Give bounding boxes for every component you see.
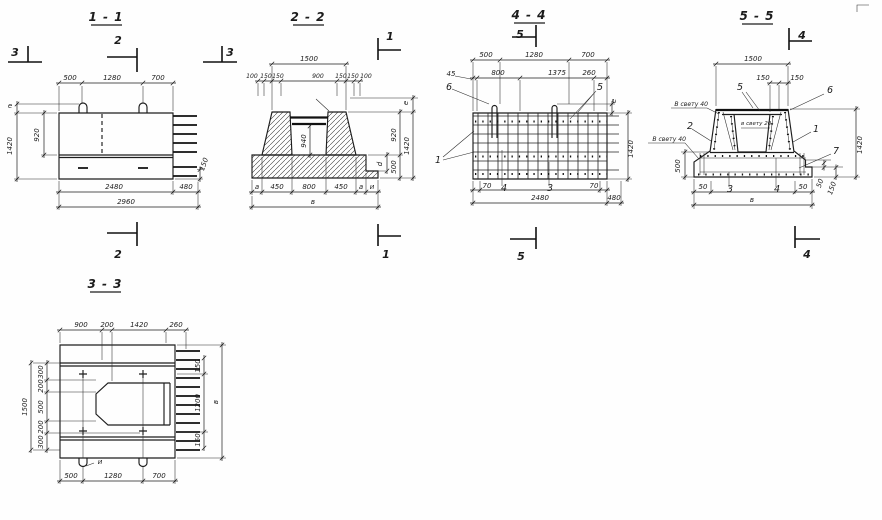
- dim-letter-a: а: [359, 183, 363, 191]
- dim: 500: [37, 400, 45, 414]
- dim: 200: [37, 420, 45, 434]
- cut-marker-5-top: 5: [516, 28, 524, 41]
- rebar-pos-3: 3: [547, 183, 553, 194]
- cut-marker-3-right: 3: [226, 46, 234, 59]
- dim: 480: [607, 194, 621, 202]
- dim-letter-u: и: [370, 183, 375, 191]
- section-2-2: 2 - 2 1 1 1500 100 150 150 900 150 150 1…: [246, 10, 418, 261]
- dim: 50: [699, 183, 708, 191]
- section-5-5-title: 5 - 5: [739, 9, 774, 23]
- dim: 1500: [744, 55, 762, 63]
- section-2-2-title: 2 - 2: [290, 10, 325, 24]
- lifting-loops: [79, 458, 147, 467]
- rebar-pos-4: 4: [501, 183, 507, 194]
- rebar-pos-6: 6: [827, 85, 833, 96]
- dim: 70: [590, 182, 599, 190]
- foundation-block-drawing: 1 - 1 3 3 2 2 500 1280 700 е 1420 920 15…: [0, 0, 882, 520]
- dim: 150: [194, 433, 202, 447]
- dim: 1280: [104, 472, 122, 480]
- dim: 50: [815, 177, 826, 189]
- base-slab-outline: [694, 151, 812, 177]
- dim: 800: [302, 183, 316, 191]
- dim: 150: [194, 359, 202, 373]
- dim: 2480: [531, 194, 549, 202]
- dim: 920: [33, 128, 41, 142]
- dim: 200: [100, 321, 114, 329]
- cut-marker-2-top: 2: [114, 34, 122, 47]
- dim: 920: [390, 128, 398, 142]
- cut-marker-5-bottom: 5: [517, 250, 525, 263]
- dim-letter-v: в: [212, 400, 220, 404]
- slot-opening: [96, 383, 170, 425]
- dim: 1500: [300, 55, 318, 63]
- section-1-1: 1 - 1 3 3 2 2 500 1280 700 е 1420 920 15…: [6, 10, 237, 261]
- dim: 150: [272, 73, 284, 80]
- rebar-pos-4: 4: [774, 184, 780, 195]
- cut-marker-4-bottom: 4: [802, 248, 811, 261]
- dim-letter-u: и: [98, 458, 103, 466]
- cut-marker-1-top: 1: [386, 30, 394, 43]
- dim: 1280: [103, 74, 121, 82]
- dim: 260: [169, 321, 183, 329]
- rebar-pos-6: 6: [446, 82, 452, 93]
- dim: 1200: [194, 394, 202, 412]
- dim: 1420: [6, 137, 14, 155]
- dim: 1420: [627, 140, 635, 158]
- dim: 2480: [105, 183, 123, 191]
- dim: 200: [37, 379, 45, 393]
- rebar-pos-1: 1: [435, 155, 441, 166]
- section-3-3: 3 - 3 900 200 1420 260 300 200 500 200 3…: [21, 277, 226, 484]
- dim: 1420: [403, 137, 411, 155]
- section-4-4: 4 - 4 5 5 500 1280 700 45 800 1375 260 е…: [435, 8, 635, 263]
- dim: 500: [674, 159, 682, 173]
- dim: 260: [582, 69, 596, 77]
- dim: 1420: [856, 136, 864, 154]
- dim-letter-a: а: [255, 183, 259, 191]
- rebar-pos-1: 1: [813, 124, 819, 135]
- dim: 100: [360, 73, 372, 80]
- dim: 480: [179, 183, 193, 191]
- dim: 150: [826, 180, 838, 196]
- cut-marker-3-left: 3: [11, 46, 19, 59]
- dim: 900: [74, 321, 88, 329]
- dim: 500: [479, 51, 493, 59]
- dim-letter-v: в: [311, 198, 315, 206]
- base-slab-section: [252, 155, 378, 178]
- cut-marker-2-bottom: 2: [114, 248, 122, 261]
- rebar-pos-7: 7: [833, 146, 839, 157]
- section-4-4-title: 4 - 4: [510, 8, 546, 22]
- dim: 700: [581, 51, 595, 59]
- dim: 150: [335, 73, 347, 80]
- lifting-loops: [79, 103, 147, 113]
- clear-distance-note: В свету 40: [652, 136, 686, 143]
- dim-letter-e: е: [610, 99, 618, 103]
- dim: 500: [63, 74, 77, 82]
- vertical-bars: [478, 113, 598, 179]
- rebar-pos-5: 5: [597, 82, 603, 93]
- dim: 500: [64, 472, 78, 480]
- dim: 800: [491, 69, 505, 77]
- dim: 150: [756, 74, 770, 82]
- hairpin-anchors: [492, 106, 557, 139]
- horizontal-bars: [473, 116, 619, 170]
- protruding-rebar: [173, 116, 197, 176]
- left-wall-section: [262, 112, 292, 155]
- dim: 1420: [130, 321, 148, 329]
- dim: 500: [390, 160, 398, 174]
- dim: 1280: [525, 51, 543, 59]
- clear-distance-note: в свету 20: [741, 121, 772, 127]
- dim: 1500: [21, 398, 29, 416]
- dim: 700: [152, 472, 166, 480]
- dim: 450: [334, 183, 348, 191]
- drawing-sheet: 1 - 1 3 3 2 2 500 1280 700 е 1420 920 15…: [0, 0, 882, 520]
- dim: 1375: [548, 69, 566, 77]
- section-1-1-title: 1 - 1: [88, 10, 123, 24]
- dim-letter-e: е: [402, 101, 410, 105]
- dim: 150: [198, 156, 210, 172]
- dim: 45: [447, 70, 456, 78]
- dim: 900: [312, 73, 324, 80]
- dim: 150: [790, 74, 804, 82]
- cut-marker-1-bottom: 1: [382, 248, 390, 261]
- dim: 450: [270, 183, 284, 191]
- cut-marker-4-top: 4: [797, 29, 806, 42]
- dim: 50: [799, 183, 808, 191]
- section-5-5: 5 - 5 4 4 1500 150 150 5 6 2 1 7: [648, 5, 869, 261]
- dim: 300: [37, 435, 45, 449]
- dim-letter-d: d: [376, 161, 384, 166]
- dim: 940: [300, 134, 308, 148]
- clear-distance-note: В свету 40: [674, 101, 708, 108]
- dim: 700: [151, 74, 165, 82]
- dim: 70: [483, 182, 492, 190]
- dim: 150: [260, 73, 272, 80]
- dim-letter-v: в: [750, 196, 754, 204]
- section-3-3-title: 3 - 3: [87, 277, 122, 291]
- rebar-pos-2: 2: [687, 121, 693, 132]
- right-wall-section: [326, 112, 356, 155]
- dim: 2960: [117, 198, 135, 206]
- rebar-pos-3: 3: [727, 184, 733, 195]
- dim: 300: [37, 365, 45, 379]
- dim: 100: [246, 73, 258, 80]
- dim-letter-e: е: [8, 102, 12, 110]
- dim: 150: [347, 73, 359, 80]
- rebar-pos-5: 5: [737, 82, 743, 93]
